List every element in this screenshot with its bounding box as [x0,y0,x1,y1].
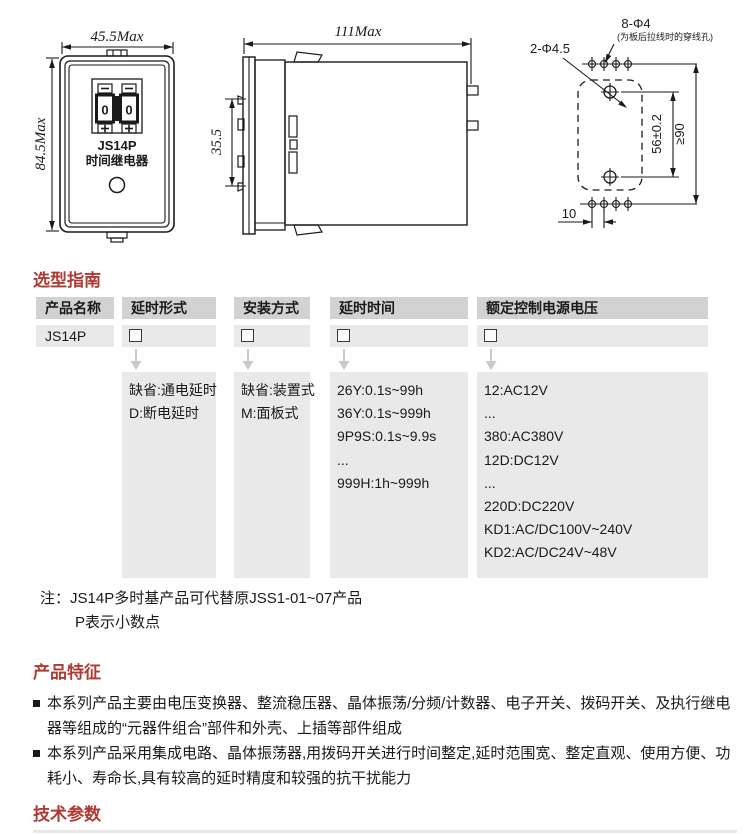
arrow-down-icon [129,349,143,371]
mount-holes-dim: 2-Φ4.5 [530,41,570,56]
wire-holes-dim: 8-Φ4 [621,16,650,31]
product-name-cell: JS14P [36,325,114,347]
hole-spacing-dim: 56±0.2 [649,114,664,154]
voltage-options: 12:AC12V ... 380:AC380V 12D:DC12V ... 22… [477,372,708,578]
option: 缺省:装置式 [241,379,310,402]
option: 999H:1h~999h [337,472,468,495]
checkbox-icon [129,329,142,342]
option: 380:AC380V [484,425,708,448]
option: ... [337,449,468,472]
features-list: 本系列产品主要由电压变换器、整流稳压器、晶体振荡/分频/计数器、电子开关、拨码开… [33,692,733,792]
datasheet-page: 45.5Max 84.5Max 0 0 JS14P 时间继电器 [0,0,750,834]
option: 220D:DC220V [484,495,708,518]
side-width-dim: 111Max [335,24,382,40]
column-header-mounting: 安装方式 [234,297,310,319]
mounting-options: 缺省:装置式 M:面板式 [234,372,310,578]
clearance-dim: ≥90 [672,123,687,145]
thumbwheel-switch [92,79,142,133]
delay-type-cell [122,325,216,347]
front-view-drawing: 45.5Max 84.5Max 0 0 JS14P 时间继电器 [15,10,210,255]
next-table-edge [33,830,737,833]
column-header-product: 产品名称 [36,297,114,319]
delay-time-options: 26Y:0.1s~99h 36Y:0.1s~999h 9P9S:0.1s~9.9… [330,372,468,578]
option: KD2:AC/DC24V~48V [484,541,708,564]
checkbox-icon [241,329,254,342]
mounting-holes [601,83,619,186]
arrow-down-icon [484,349,498,371]
option: 26Y:0.1s~99h [337,379,468,402]
voltage-cell [477,325,708,347]
option: 12:AC12V [484,379,708,402]
option: M:面板式 [241,402,310,425]
checkbox-icon [484,329,497,342]
feature-item: 本系列产品采用集成电路、晶体振荡器,用拨码开关进行时间整定,延时范围宽、整定直观… [33,742,733,791]
panel-cutout-drawing: 8-Φ4 (为板后拉线时的穿线孔) 2-Φ4.5 56±0.2 ≥90 10 [490,8,745,243]
side-height-dim: 35.5 [210,128,225,156]
option: ... [484,472,708,495]
indicator-lamp [110,178,125,193]
column-header-delay-type: 延时形式 [122,297,216,319]
checkbox-icon [337,329,350,342]
selection-guide-title: 选型指南 [33,266,101,291]
thumbwheel-digit: 0 [101,103,108,118]
option: ... [484,402,708,425]
thumbwheel-digit: 0 [125,103,132,118]
pitch-dim: 10 [562,206,576,221]
option: 36Y:0.1s~999h [337,402,468,425]
feature-item: 本系列产品主要由电压变换器、整流稳压器、晶体振荡/分频/计数器、电子开关、拨码开… [33,692,733,741]
arrow-down-icon [337,349,351,371]
column-header-delay-time: 延时时间 [330,297,468,319]
wire-holes-note: (为板后拉线时的穿线孔) [617,31,713,42]
mounting-cell [234,325,310,347]
model-label: JS14P [97,138,136,153]
option: D:断电延时 [129,402,216,425]
option: KD1:AC/DC100V~240V [484,518,708,541]
delay-type-options: 缺省:通电延时 D:断电延时 [122,372,216,578]
note-line-2: P表示小数点 [75,612,160,634]
tech-params-title: 技术参数 [33,800,101,825]
option: 缺省:通电延时 [129,379,216,402]
arrow-down-icon [241,349,255,371]
note-line-1: 注：JS14P多时基产品可代替原JSS1-01~07产品 [40,588,362,610]
front-width-dim: 45.5Max [91,29,144,45]
column-header-voltage: 额定控制电源电压 [477,297,708,319]
delay-time-cell [330,325,468,347]
side-view-drawing: 111Max 35.5 [210,10,490,250]
option: 9P9S:0.1s~9.9s [337,425,468,448]
front-height-dim: 84.5Max [33,117,49,170]
device-label: 时间继电器 [86,153,149,168]
features-title: 产品特征 [33,658,101,683]
option: 12D:DC12V [484,449,708,472]
